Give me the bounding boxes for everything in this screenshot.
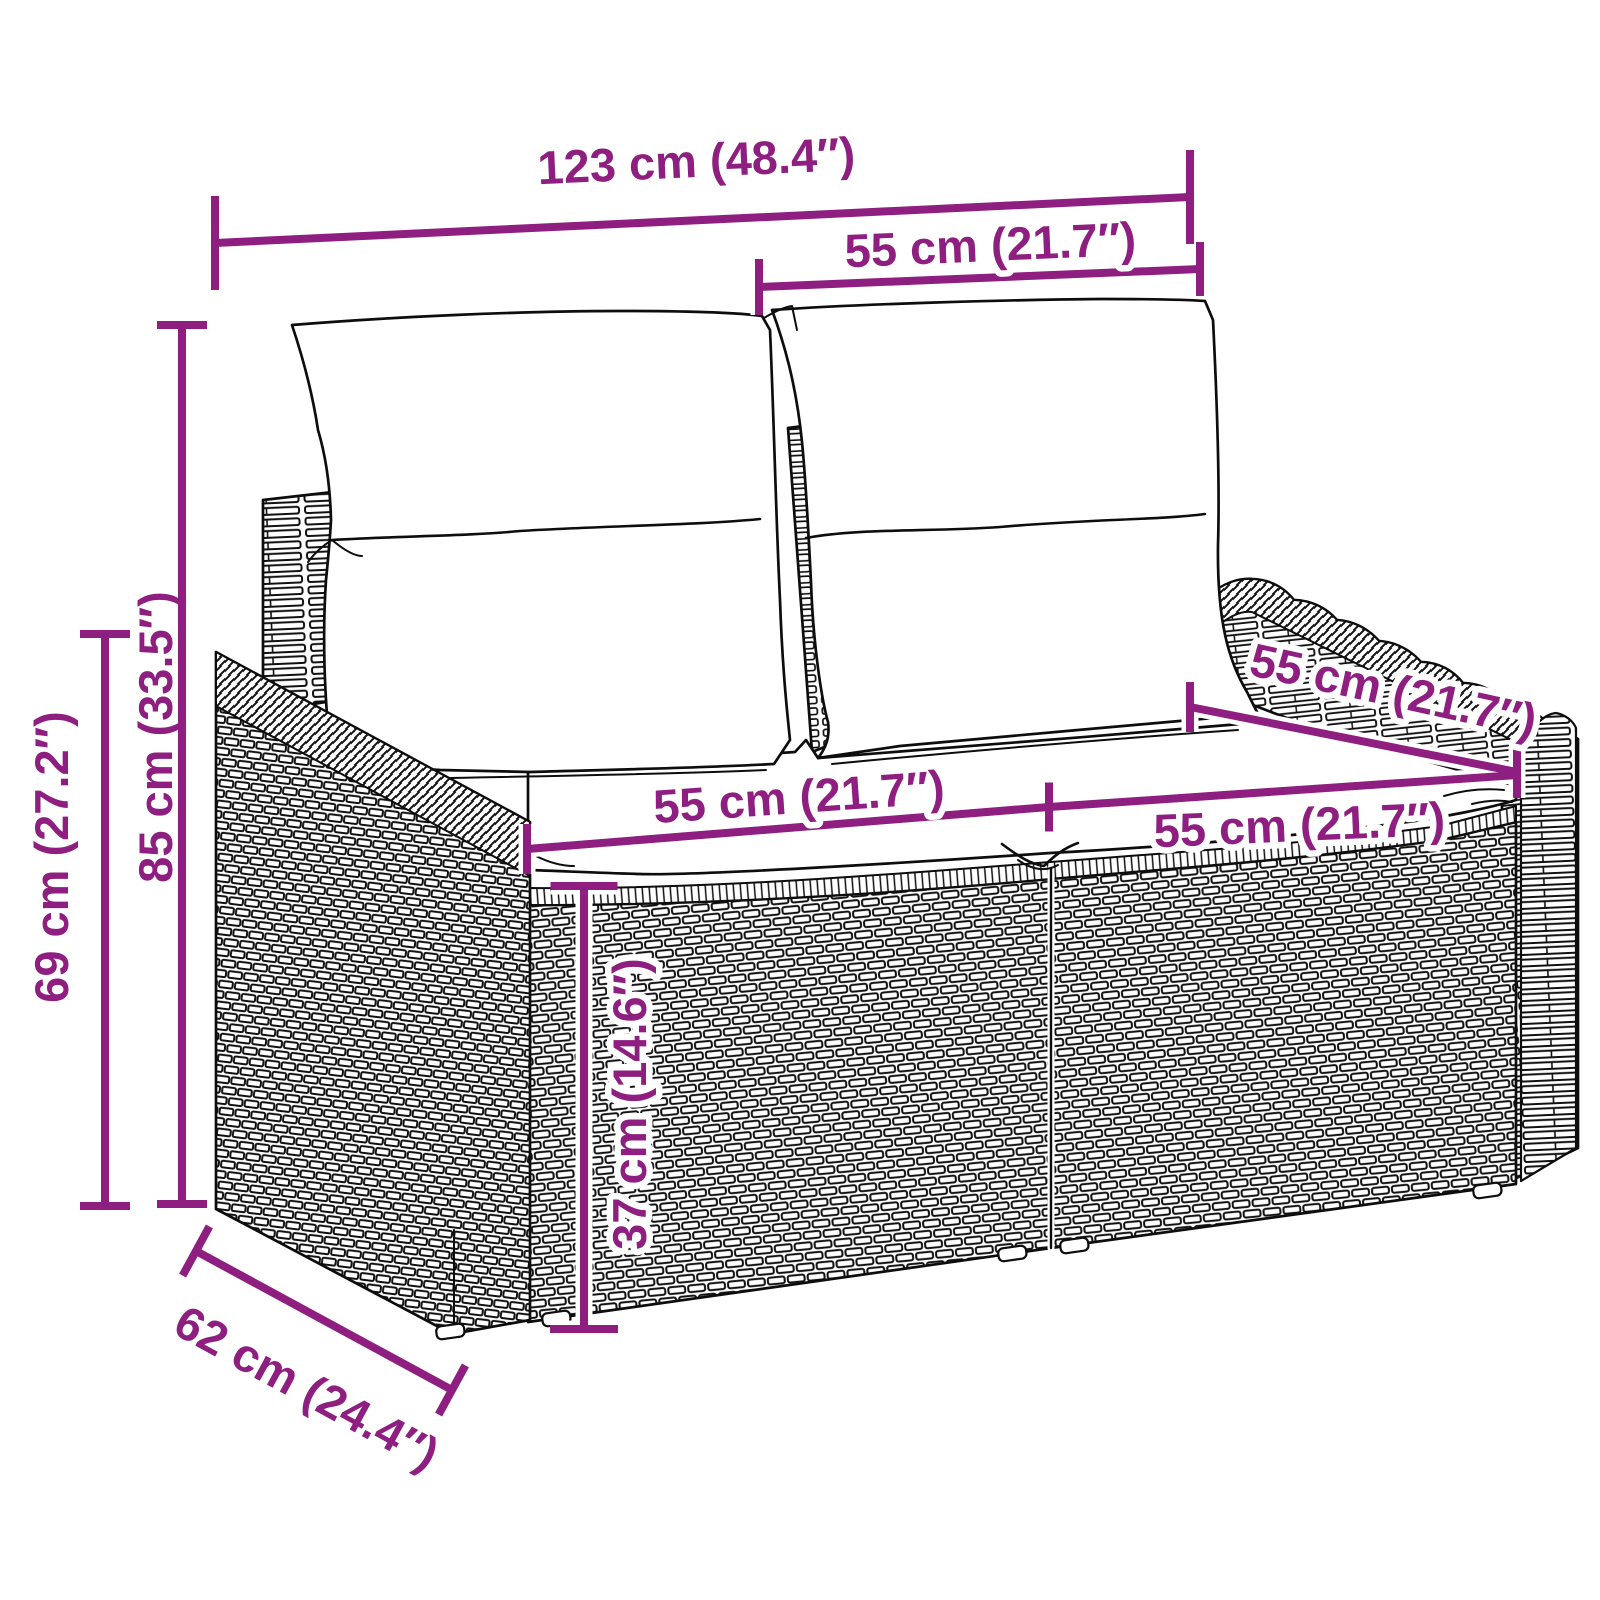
svg-text:69 cm (27.2″): 69 cm (27.2″) [25,711,78,1003]
svg-text:85 cm (33.5″): 85 cm (33.5″) [129,591,182,883]
svg-text:37 cm (14.6″): 37 cm (14.6″) [603,958,656,1250]
